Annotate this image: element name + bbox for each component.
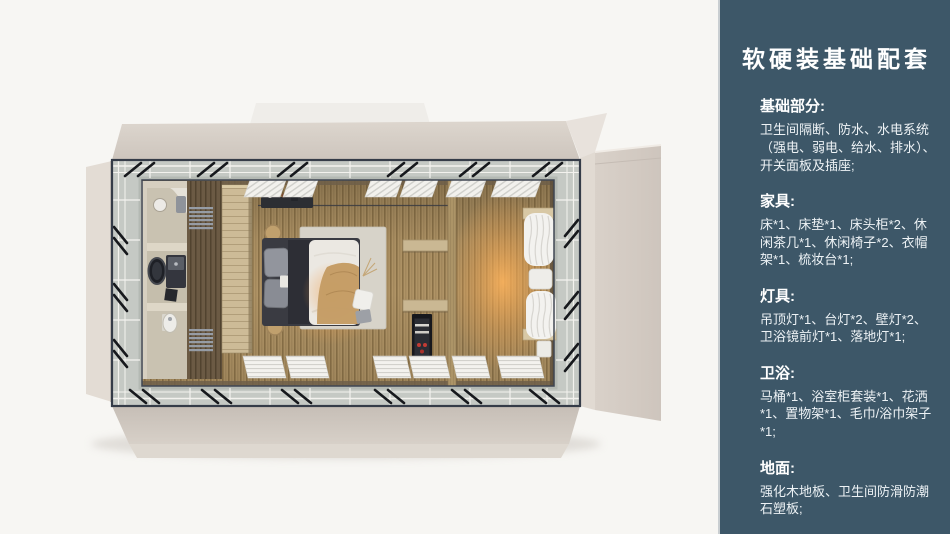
floorplan-render-area	[0, 0, 718, 534]
section-body: 床*1、床垫*1、床头柜*2、休闲茶几*1、休闲椅子*2、衣帽架*1、梳妆台*1…	[760, 216, 936, 269]
ceiling-slat-panels-top	[244, 180, 541, 197]
section-heading: 家具:	[760, 193, 936, 212]
ottoman	[529, 269, 552, 289]
section-floor: 地面: 强化木地板、卫生间防滑防潮石塑板;	[760, 460, 936, 518]
floorplan-render	[0, 0, 718, 534]
curtain-bottom	[526, 291, 556, 339]
shower-head	[154, 199, 167, 212]
section-body: 马桶*1、浴室柜套装*1、花洒*1、置物架*1、毛巾/浴巾架子*1;	[760, 388, 936, 441]
panel-title: 软硬装基础配套	[742, 46, 936, 72]
floor-cushion	[352, 289, 374, 311]
bathroom-slat-wall	[187, 181, 222, 379]
pillow	[264, 248, 289, 277]
spec-panel: 软硬装基础配套 基础部分: 卫生间隔断、防水、水电系统（强电、弱电、给水、排水）…	[718, 0, 950, 534]
slide: 软硬装基础配套 基础部分: 卫生间隔断、防水、水电系统（强电、弱电、给水、排水）…	[0, 0, 950, 534]
minibar-cabinet	[412, 314, 432, 360]
bed	[262, 225, 386, 335]
bathroom-area	[141, 181, 187, 379]
wardrobe	[222, 185, 252, 353]
section-heading: 基础部分:	[760, 98, 936, 117]
section-heading: 灯具:	[760, 288, 936, 307]
section-heading: 地面:	[760, 460, 936, 479]
partition-wall	[448, 181, 456, 386]
section-bathroom: 卫浴: 马桶*1、浴室柜套装*1、花洒*1、置物架*1、毛巾/浴巾架子*1;	[760, 365, 936, 441]
section-lighting: 灯具: 吊顶灯*1、台灯*2、壁灯*2、卫浴镜前灯*1、落地灯*1;	[760, 288, 936, 346]
toilet	[163, 314, 177, 333]
section-heading: 卫浴:	[760, 365, 936, 384]
section-basics: 基础部分: 卫生间隔断、防水、水电系统（强电、弱电、给水、排水）、开关面板及插座…	[760, 98, 936, 174]
section-body: 卫生间隔断、防水、水电系统（强电、弱电、给水、排水）、开关面板及插座;	[760, 121, 936, 174]
section-furniture: 家具: 床*1、床垫*1、床头柜*2、休闲茶几*1、休闲椅子*2、衣帽架*1、梳…	[760, 193, 936, 269]
curtain-top	[524, 213, 554, 266]
section-body: 吊顶灯*1、台灯*2、壁灯*2、卫浴镜前灯*1、落地灯*1;	[760, 311, 936, 346]
section-body: 强化木地板、卫生间防滑防潮石塑板;	[760, 483, 936, 518]
